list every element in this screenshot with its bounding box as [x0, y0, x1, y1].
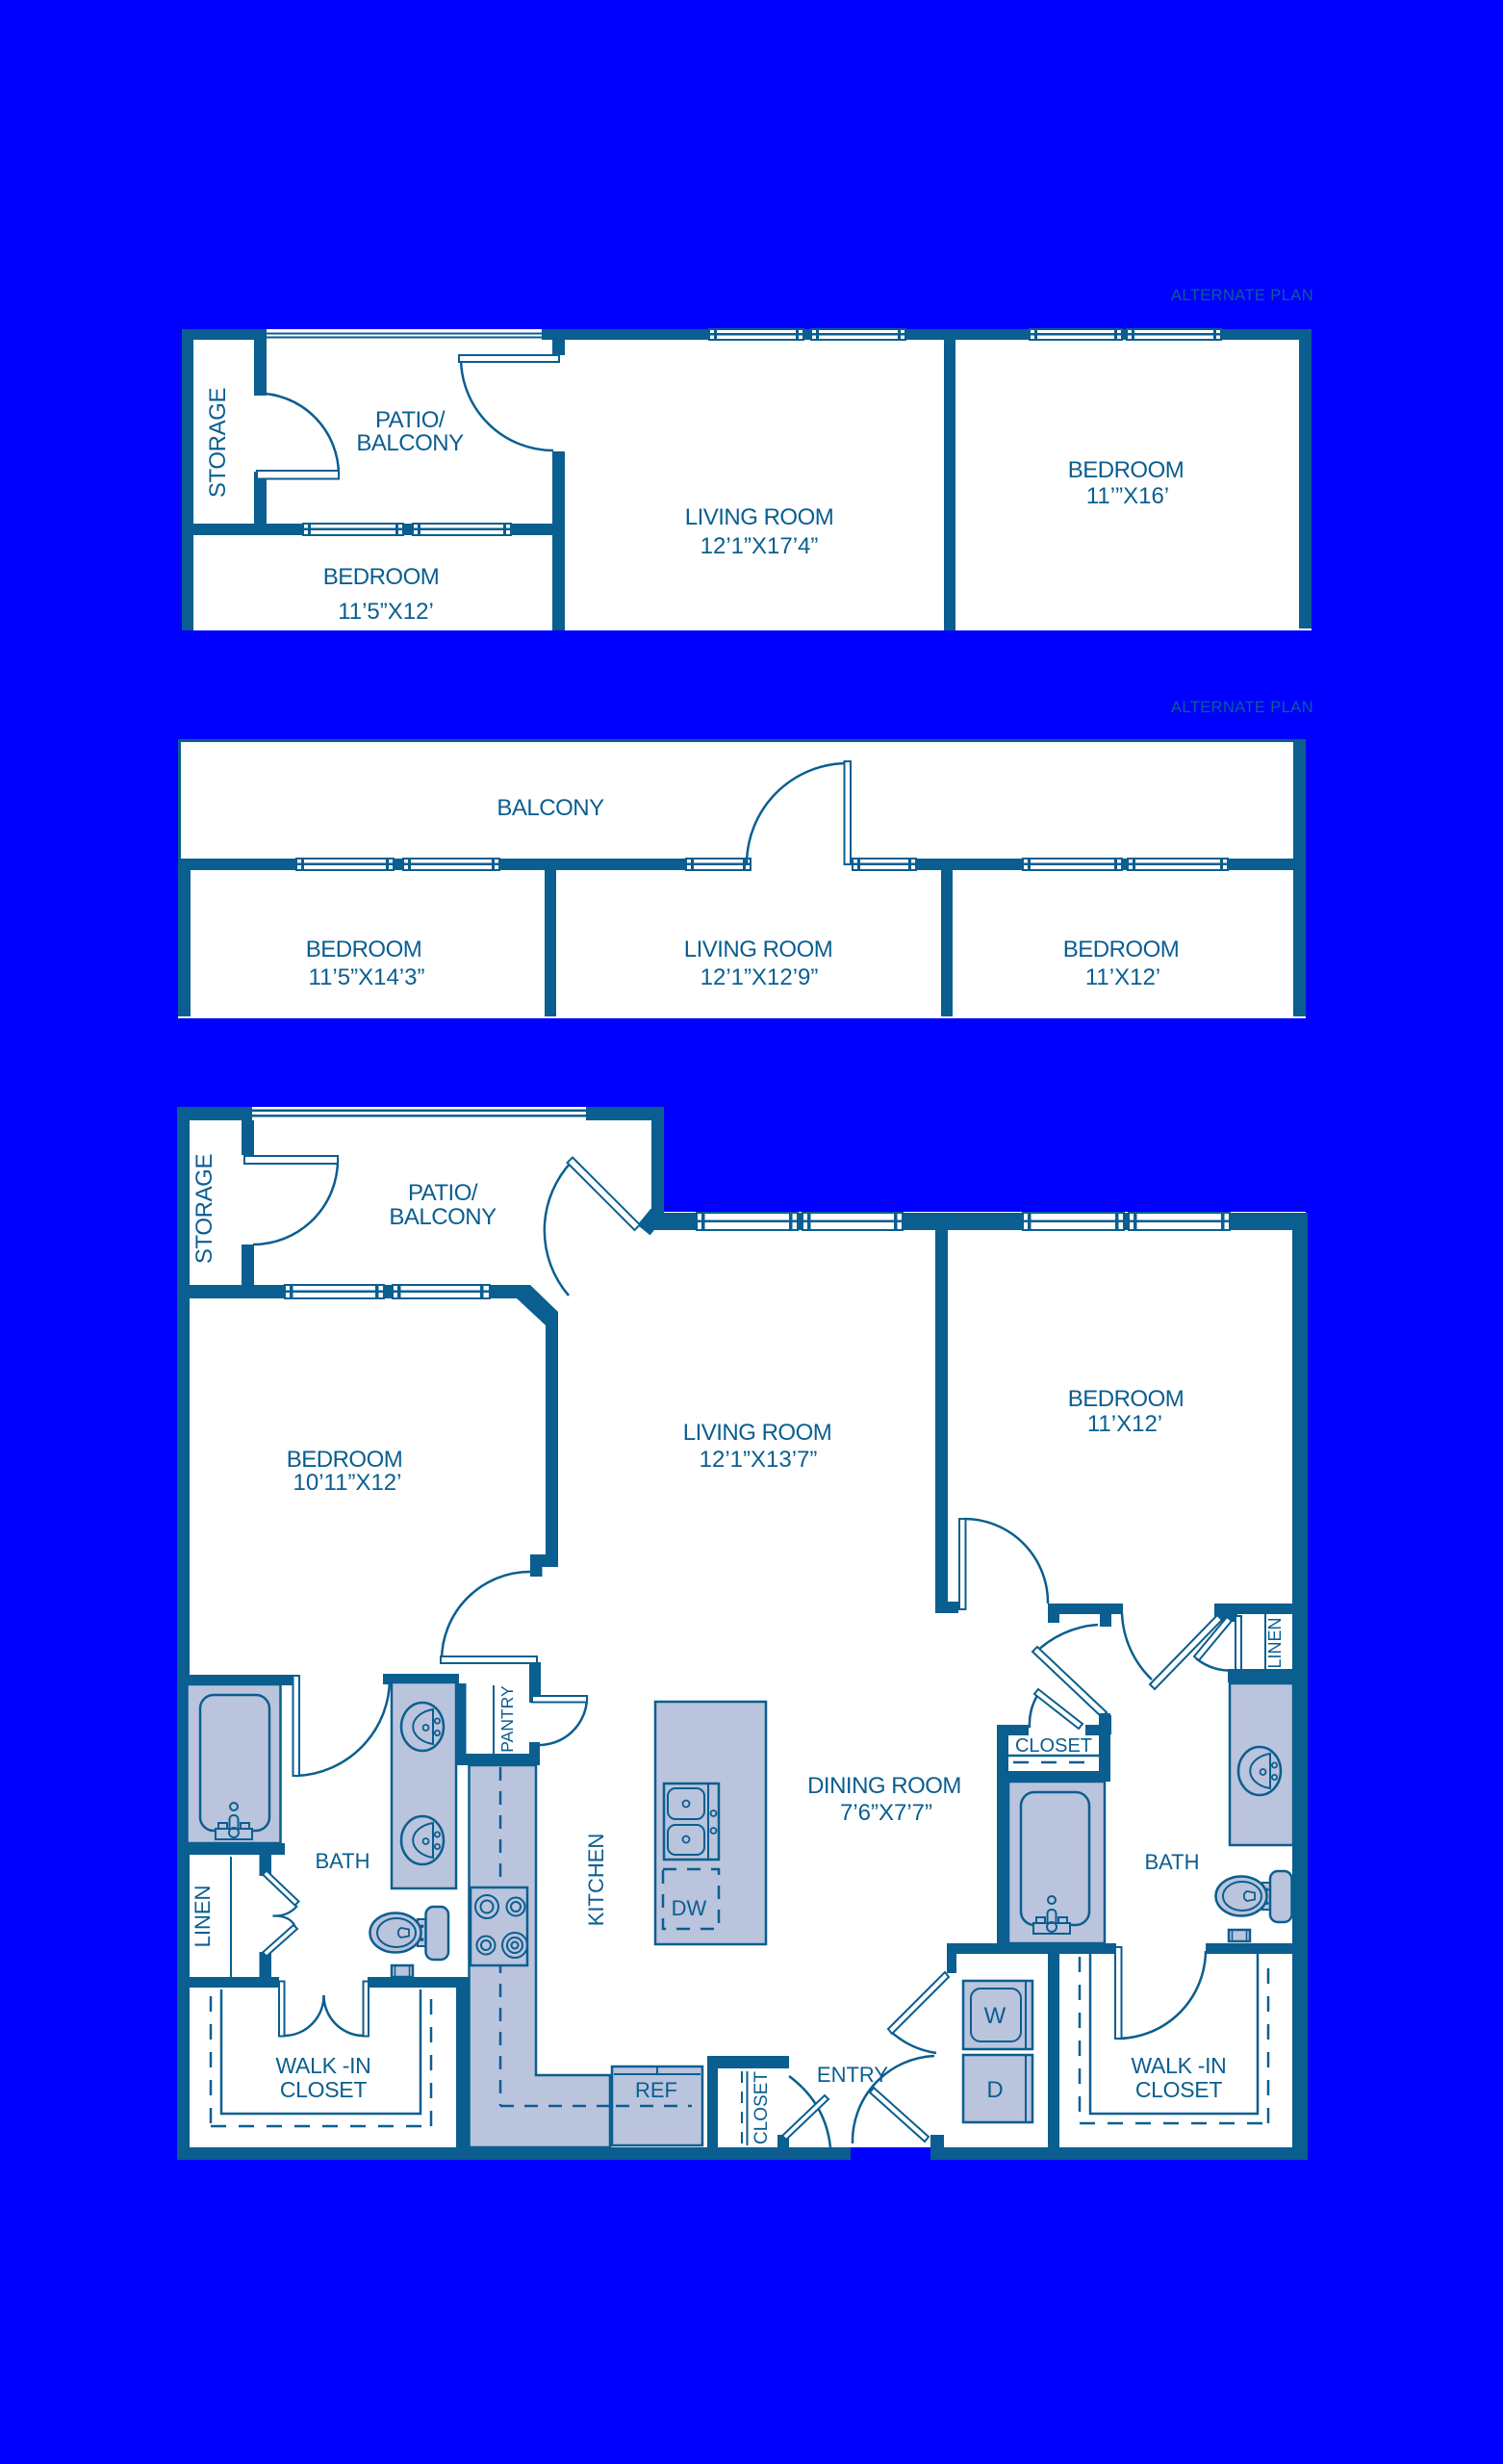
svg-text:11’”X16’: 11’”X16’	[1086, 483, 1169, 509]
svg-text:BATH: BATH	[315, 1849, 369, 1873]
svg-text:ENTRY: ENTRY	[817, 2063, 888, 2087]
svg-text:BEDROOM: BEDROOM	[287, 1447, 403, 1473]
svg-text:STORAGE: STORAGE	[191, 1154, 217, 1264]
svg-text:PATIO/: PATIO/	[375, 407, 446, 433]
svg-text:11’5”X12’: 11’5”X12’	[338, 599, 434, 625]
svg-text:CLOSET: CLOSET	[751, 2071, 772, 2144]
svg-text:PANTRY: PANTRY	[497, 1685, 517, 1753]
svg-text:LINEN: LINEN	[1265, 1617, 1285, 1668]
svg-text:KITCHEN: KITCHEN	[584, 1834, 608, 1927]
svg-text:LIVING ROOM: LIVING ROOM	[685, 504, 834, 530]
svg-text:BALCONY: BALCONY	[356, 430, 464, 456]
svg-text:12’1”X13’7”: 12’1”X13’7”	[700, 1447, 818, 1473]
svg-text:CLOSET: CLOSET	[1015, 1735, 1092, 1757]
svg-text:12’1”X17’4”: 12’1”X17’4”	[701, 533, 819, 559]
svg-text:STORAGE: STORAGE	[205, 388, 231, 498]
svg-text:11’X12’: 11’X12’	[1085, 964, 1160, 990]
svg-text:11’X12’: 11’X12’	[1087, 1411, 1162, 1437]
svg-text:BEDROOM: BEDROOM	[1068, 457, 1185, 483]
svg-text:11’5”X14’3”: 11’5”X14’3”	[309, 964, 425, 990]
svg-text:BEDROOM: BEDROOM	[1068, 1386, 1185, 1412]
svg-text:CLOSET: CLOSET	[1135, 2077, 1222, 2102]
svg-text:BALCONY: BALCONY	[497, 795, 604, 821]
svg-text:REF: REF	[635, 2078, 677, 2102]
svg-text:LINEN: LINEN	[191, 1886, 215, 1948]
svg-text:PATIO/: PATIO/	[408, 1180, 478, 1206]
svg-text:BEDROOM: BEDROOM	[323, 564, 440, 590]
svg-text:BEDROOM: BEDROOM	[306, 937, 422, 962]
svg-text:W: W	[984, 2003, 1006, 2029]
svg-text:ALTERNATE PLAN: ALTERNATE PLAN	[1171, 287, 1313, 304]
svg-text:10’11”X12’: 10’11”X12’	[293, 1470, 402, 1496]
svg-text:LIVING ROOM: LIVING ROOM	[683, 1420, 832, 1446]
svg-text:LIVING ROOM: LIVING ROOM	[684, 937, 833, 962]
svg-text:D: D	[986, 2077, 1003, 2103]
svg-text:12’1”X12’9”: 12’1”X12’9”	[701, 964, 819, 990]
svg-text:DINING ROOM: DINING ROOM	[807, 1773, 961, 1799]
svg-text:ALTERNATE PLAN: ALTERNATE PLAN	[1171, 699, 1313, 716]
svg-text:BALCONY: BALCONY	[389, 1204, 497, 1230]
svg-text:7’6”X7’7”: 7’6”X7’7”	[840, 1800, 932, 1826]
svg-text:WALK -IN: WALK -IN	[276, 2053, 371, 2078]
svg-text:WALK -IN: WALK -IN	[1132, 2053, 1227, 2078]
svg-text:DW: DW	[672, 1896, 707, 1920]
svg-text:CLOSET: CLOSET	[280, 2077, 367, 2102]
svg-text:BATH: BATH	[1144, 1850, 1199, 1874]
svg-text:BEDROOM: BEDROOM	[1063, 937, 1180, 962]
